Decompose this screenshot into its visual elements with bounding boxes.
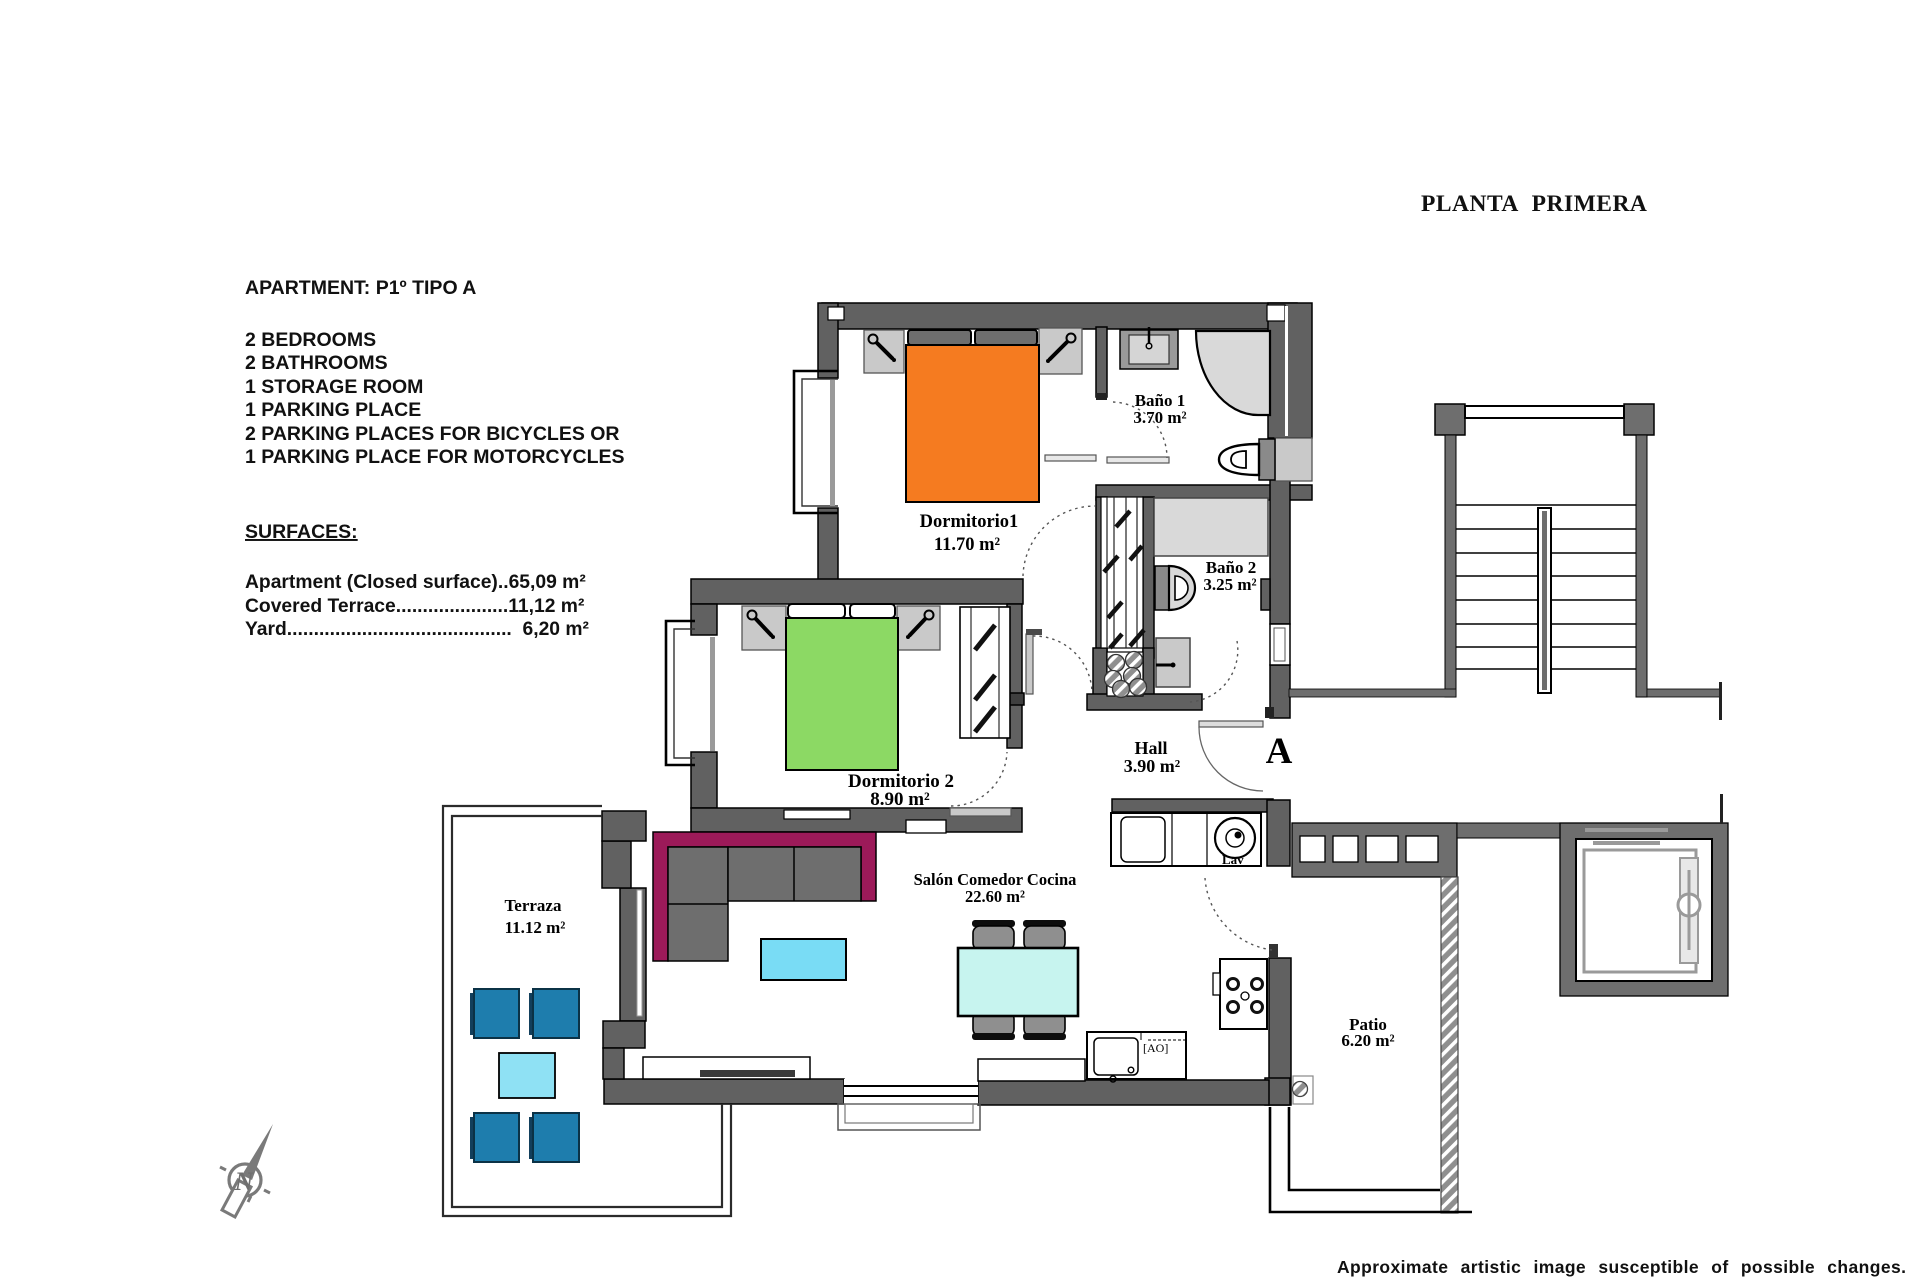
svg-text:8.90 m²: 8.90 m²: [870, 789, 930, 810]
svg-text:22.60 m²: 22.60 m²: [965, 887, 1025, 906]
svg-text:3.25 m²: 3.25 m²: [1203, 575, 1256, 594]
svg-text:Covered Terrace...............: Covered Terrace.....................11,1…: [245, 596, 585, 617]
svg-text:1 STORAGE ROOM: 1 STORAGE ROOM: [245, 376, 423, 398]
svg-text:2 BATHROOMS: 2 BATHROOMS: [245, 352, 388, 374]
svg-text:Hall: Hall: [1134, 738, 1167, 758]
svg-text:3.70 m²: 3.70 m²: [1133, 408, 1186, 427]
svg-text:1 PARKING PLACE: 1 PARKING PLACE: [245, 399, 421, 421]
svg-text:Terraza: Terraza: [505, 896, 562, 915]
svg-text:3.90 m²: 3.90 m²: [1124, 756, 1180, 776]
svg-text:11.70 m²: 11.70 m²: [934, 535, 1001, 555]
svg-text:[AO]: [AO]: [1143, 1041, 1168, 1055]
svg-text:A: A: [1266, 731, 1293, 772]
svg-text:APARTMENT: P1º TIPO A: APARTMENT: P1º TIPO A: [245, 277, 476, 299]
svg-text:Yard..........................: Yard....................................…: [245, 619, 590, 640]
svg-text:6.20 m²: 6.20 m²: [1341, 1031, 1394, 1050]
svg-text:N: N: [234, 1167, 255, 1196]
svg-text:2 PARKING PLACES FOR BICYCLES: 2 PARKING PLACES FOR BICYCLES OR: [245, 423, 620, 445]
svg-text:Apartment (Closed surface)..65: Apartment (Closed surface)..65,09 m²: [245, 572, 586, 593]
svg-text:1 PARKING PLACE FOR MOTORCYCLE: 1 PARKING PLACE FOR MOTORCYCLES: [245, 446, 625, 468]
svg-text:2 BEDROOMS: 2 BEDROOMS: [245, 329, 376, 351]
svg-text:Dormitorio1: Dormitorio1: [920, 512, 1019, 532]
svg-text:11.12 m²: 11.12 m²: [505, 918, 566, 937]
svg-text:Approximate artistic image sus: Approximate artistic image susceptible o…: [1337, 1257, 1906, 1277]
svg-text:PLANTA PRIMERA: PLANTA PRIMERA: [1421, 191, 1647, 217]
svg-text:Lav: Lav: [1222, 852, 1244, 867]
svg-text:SURFACES:: SURFACES:: [245, 521, 358, 543]
